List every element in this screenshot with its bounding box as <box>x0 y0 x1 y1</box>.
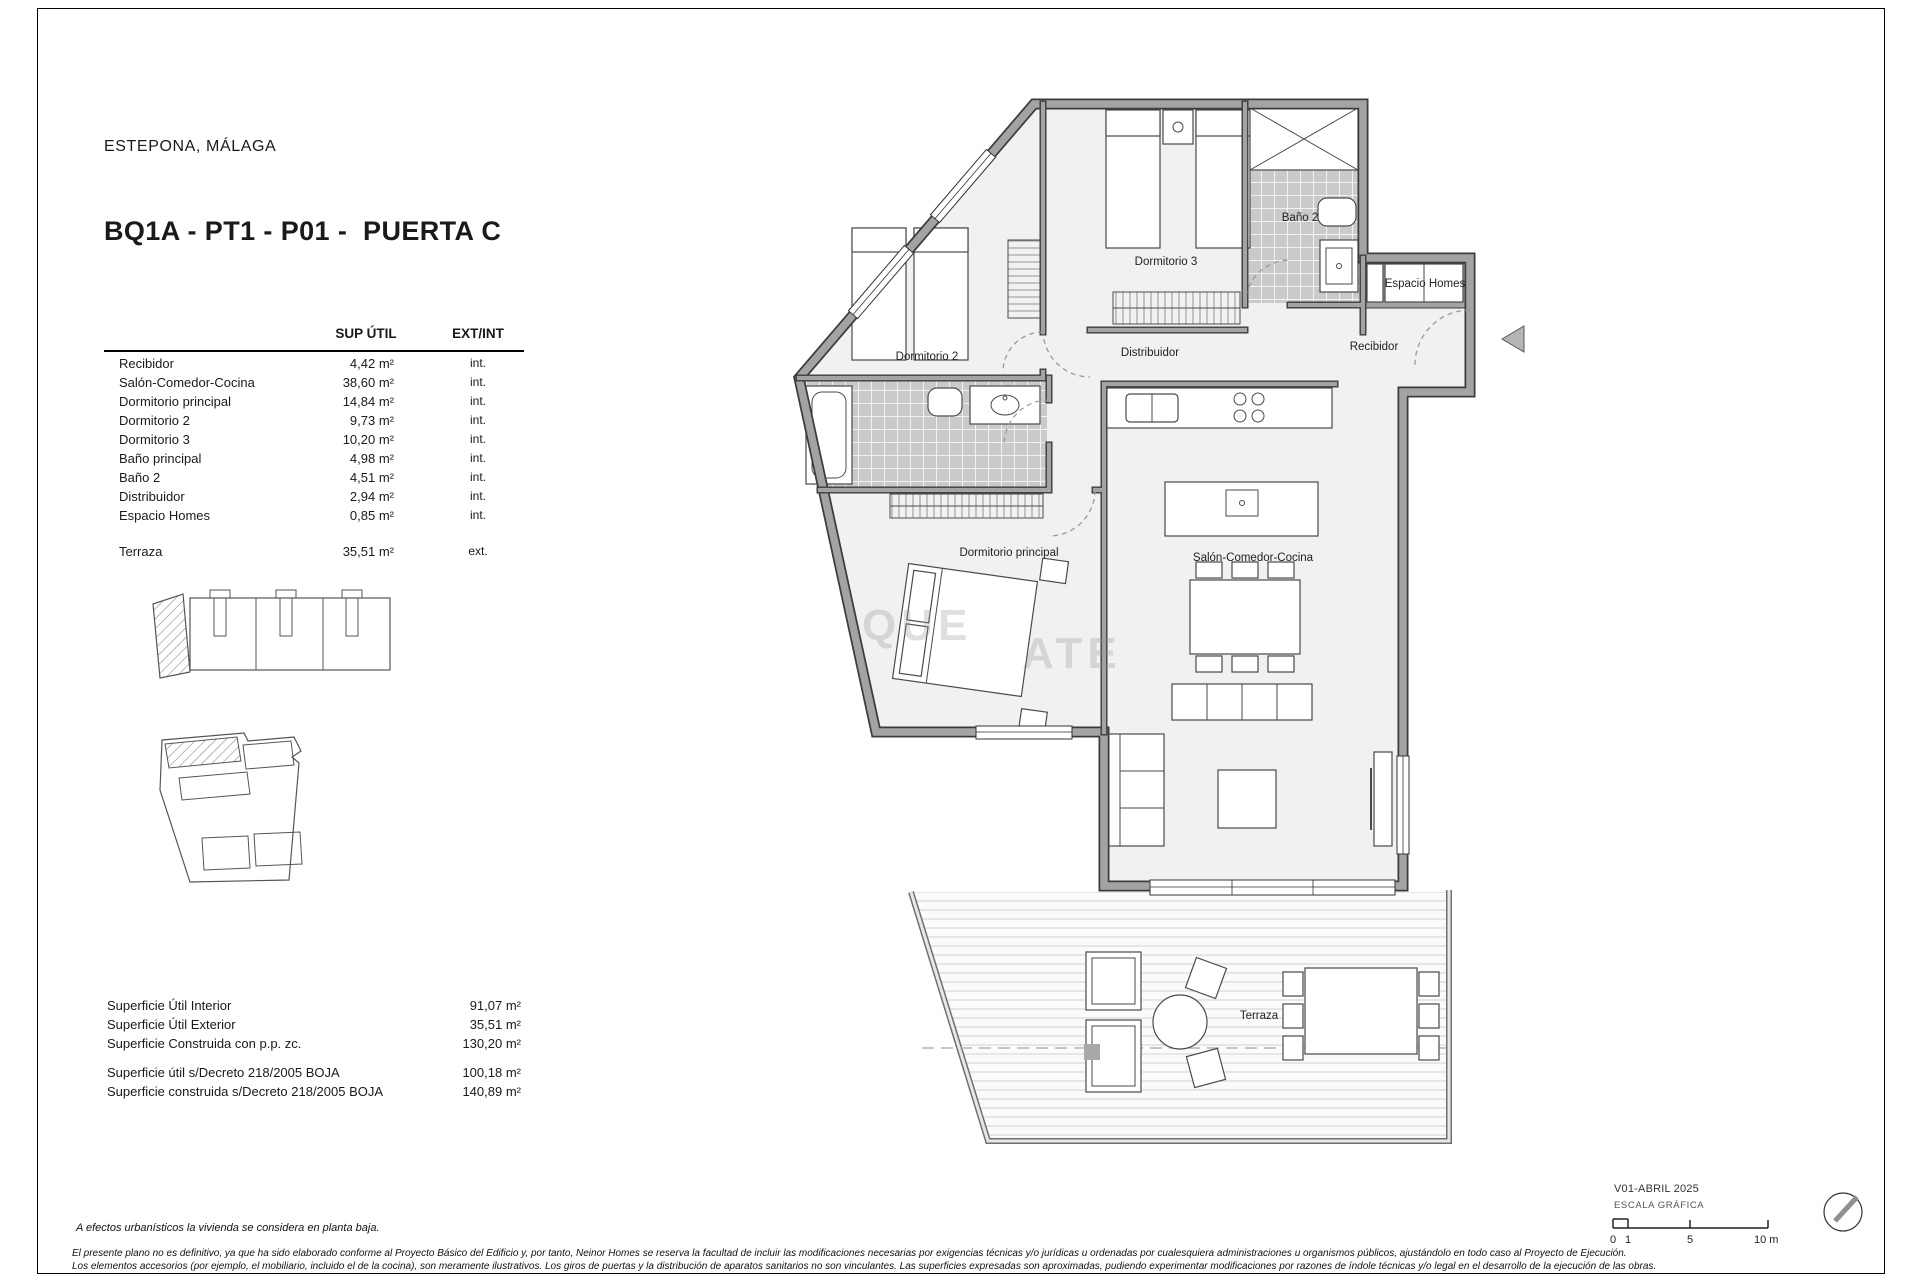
building-outline <box>190 598 390 670</box>
col-header-sup-util: SUP ÚTIL <box>306 326 426 341</box>
location-text: ESTEPONA, MÁLAGA <box>104 138 276 156</box>
table-row: Dormitorio 29,73 m²int. <box>104 411 524 430</box>
chair <box>1268 656 1294 672</box>
version-text: V01-ABRIL 2025 <box>1614 1183 1699 1195</box>
room-label-bano-2: Baño 2 <box>1282 212 1318 224</box>
wardrobe <box>1008 240 1042 318</box>
chair <box>1196 562 1222 578</box>
summary-row-decree: Superficie útil s/Decreto 218/2005 BOJA1… <box>107 1063 521 1082</box>
summary-row: Superficie Útil Exterior35,51 m² <box>107 1015 521 1034</box>
graphic-scale-bar: 0 1 5 10 m <box>1608 1214 1780 1248</box>
watermark-fragment: ATE <box>1022 629 1122 678</box>
summary-row-decree: Superficie construida s/Decreto 218/2005… <box>107 1082 521 1101</box>
table-header-rule <box>104 350 524 352</box>
room-label-terraza: Terraza <box>1240 1010 1279 1022</box>
table-row: Baño 24,51 m²int. <box>104 468 524 487</box>
room-label-dormitorio-3: Dormitorio 3 <box>1135 256 1198 268</box>
roof-notch <box>342 590 362 598</box>
table-row-terraza: Terraza35,51 m²ext. <box>104 542 524 561</box>
toilet <box>1318 198 1356 226</box>
room-label-distribuidor: Distribuidor <box>1121 347 1179 359</box>
chair <box>1232 656 1258 672</box>
stair-core <box>346 598 358 636</box>
disclaimer-line-2: Los elementos accesorios (por ejemplo, e… <box>72 1261 1872 1274</box>
plot-building <box>179 772 250 800</box>
table-row: Recibidor4,42 m²int. <box>104 354 524 373</box>
floor-plan: QUE ATE Dormitorio 2 Dormitorio 3 Baño 2… <box>780 90 1550 1170</box>
round-table <box>1153 995 1207 1049</box>
scale-label: ESCALA GRÁFICA <box>1614 1200 1704 1211</box>
room-label-recibidor: Recibidor <box>1350 341 1399 353</box>
room-label-espacio-homes: Espacio Homes <box>1385 278 1466 290</box>
scale-tick-0: 0 <box>1610 1234 1616 1246</box>
legal-disclaimer: El presente plano no es definitivo, ya q… <box>72 1248 1872 1273</box>
watermark-fragment: QUE <box>862 601 972 650</box>
stair-core <box>214 598 226 636</box>
plan-sheet: ESTEPONA, MÁLAGA BQ1A - PT1 - P01 - PUER… <box>0 0 1920 1280</box>
summary-row: Superficie Construida con p.p. zc.130,20… <box>107 1034 521 1053</box>
summary-row: Superficie Útil Interior91,07 m² <box>107 996 521 1015</box>
dining-table <box>1190 580 1300 654</box>
tv-bench <box>1374 752 1392 846</box>
dormitorio-principal-terrace-door <box>976 726 1072 739</box>
col-header-ext-int: EXT/INT <box>418 326 538 341</box>
chair <box>1419 1004 1439 1028</box>
room-label-dormitorio-2: Dormitorio 2 <box>896 351 959 363</box>
outdoor-sofa <box>1086 952 1141 1010</box>
chair <box>1283 972 1303 996</box>
plot-building <box>254 832 302 866</box>
table-row: Salón-Comedor-Cocina38,60 m²int. <box>104 373 524 392</box>
highlighted-unit-hatch <box>153 594 190 678</box>
room-label-dormitorio-principal: Dormitorio principal <box>959 547 1058 559</box>
areas-table: SUP ÚTIL EXT/INT Recibidor4,42 m²int. Sa… <box>104 326 524 561</box>
roof-notch <box>210 590 230 598</box>
roof-notch <box>276 590 296 598</box>
chair <box>1196 656 1222 672</box>
outdoor-dining-table <box>1305 968 1417 1054</box>
surface-summary: Superficie Útil Interior91,07 m² Superfi… <box>107 996 521 1101</box>
scale-tick-10: 10 m <box>1754 1234 1778 1246</box>
plot-building <box>202 836 250 870</box>
table-row: Dormitorio principal14,84 m²int. <box>104 392 524 411</box>
site-key-building-diagram <box>150 584 395 686</box>
terrace-step <box>1084 1044 1100 1060</box>
areas-table-header: SUP ÚTIL EXT/INT <box>104 326 524 350</box>
chair <box>1419 1036 1439 1060</box>
plot-building <box>243 741 294 769</box>
entry-arrow-icon <box>1502 326 1524 352</box>
chair <box>1232 562 1258 578</box>
table-row: Espacio Homes0,85 m²int. <box>104 506 524 525</box>
salon-glass-doors <box>1150 880 1395 895</box>
table-row: Dormitorio 310,20 m²int. <box>104 430 524 449</box>
stair-core <box>280 598 292 636</box>
urbanistic-footnote: A efectos urbanísticos la vivienda se co… <box>76 1222 380 1234</box>
room-label-salon: Salón-Comedor-Cocina <box>1193 552 1314 564</box>
table-row: Baño principal4,98 m²int. <box>104 449 524 468</box>
toilet <box>928 388 962 416</box>
nightstand <box>1163 110 1193 144</box>
scale-tick-1: 1 <box>1625 1234 1631 1246</box>
sofa <box>1106 734 1164 846</box>
chair <box>1268 562 1294 578</box>
chair <box>1283 1004 1303 1028</box>
nightstand <box>1040 558 1069 583</box>
highlighted-block-hatch <box>165 737 241 768</box>
north-compass-icon <box>1820 1188 1868 1236</box>
scale-tick-5: 5 <box>1687 1234 1693 1246</box>
table-row: Distribuidor2,94 m²int. <box>104 487 524 506</box>
chair <box>1419 972 1439 996</box>
page-title: BQ1A - PT1 - P01 - PUERTA C <box>104 216 501 247</box>
disclaimer-line-1: El presente plano no es definitivo, ya q… <box>72 1248 1872 1261</box>
chair <box>1283 1036 1303 1060</box>
site-key-plot-diagram <box>148 728 330 898</box>
coffee-table <box>1218 770 1276 828</box>
